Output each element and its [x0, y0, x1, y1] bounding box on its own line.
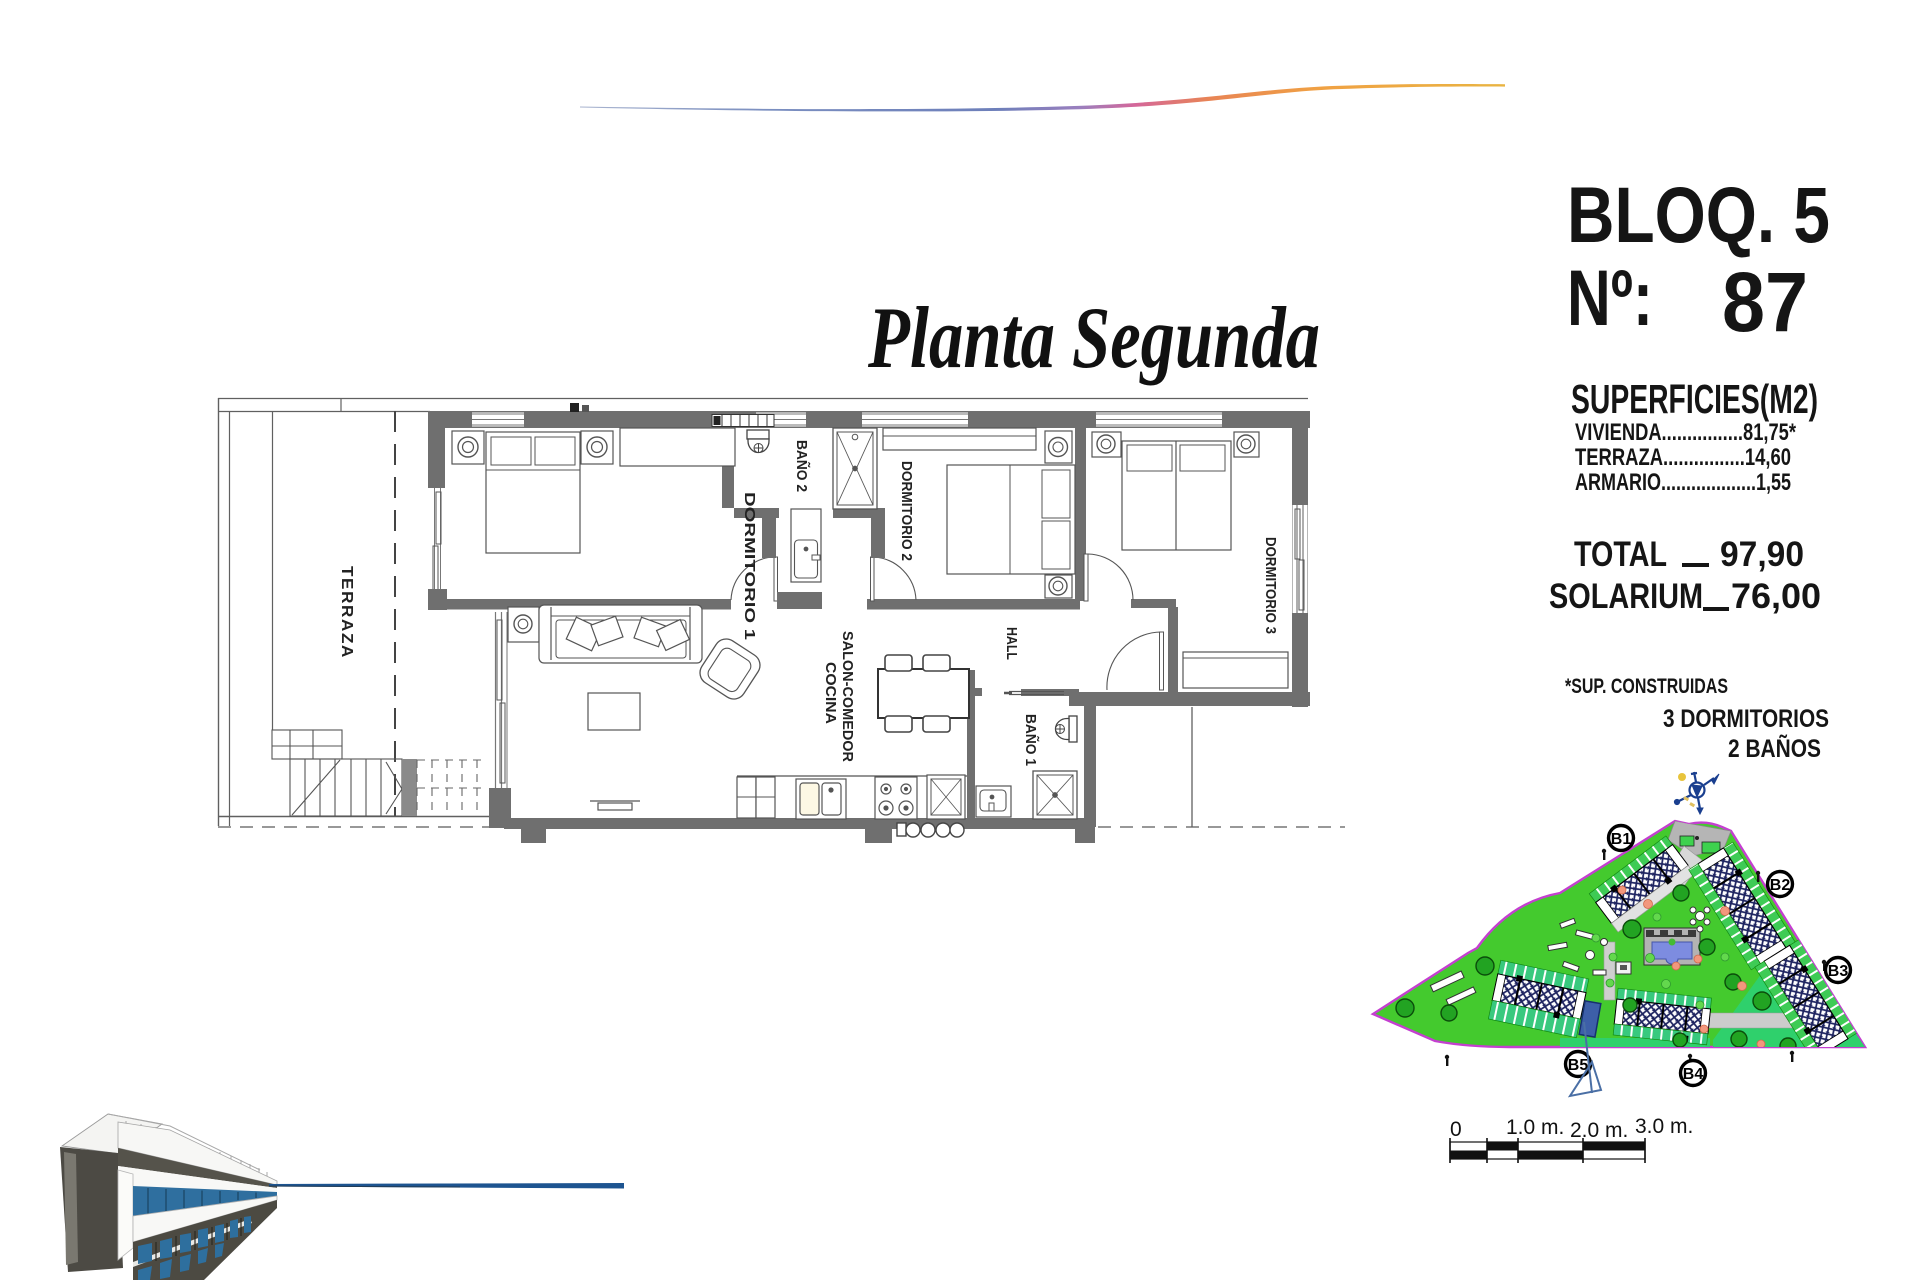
svg-text:DORMITORIO 1: DORMITORIO 1: [741, 492, 758, 640]
svg-text:VIVIENDA................81,75*: VIVIENDA................81,75*: [1575, 419, 1796, 446]
svg-text:2.0 m.: 2.0 m.: [1570, 1119, 1628, 1142]
svg-text:SUPERFICIES(M2): SUPERFICIES(M2): [1571, 376, 1818, 422]
svg-text:B2: B2: [1770, 877, 1791, 894]
svg-text:TERRAZA: TERRAZA: [338, 566, 355, 659]
svg-text:2 BAÑOS: 2 BAÑOS: [1728, 733, 1821, 763]
svg-text:B4: B4: [1683, 1066, 1704, 1083]
svg-text:*SUP. CONSTRUIDAS: *SUP. CONSTRUIDAS: [1565, 675, 1728, 698]
svg-text:3 DORMITORIOS: 3 DORMITORIOS: [1663, 705, 1829, 733]
svg-text:BLOQ. 5: BLOQ. 5: [1567, 170, 1830, 259]
svg-text:DORMITORIO 2: DORMITORIO 2: [898, 461, 914, 561]
svg-text:TERRAZA................14,60: TERRAZA................14,60: [1575, 444, 1791, 471]
svg-text:87: 87: [1722, 255, 1808, 349]
svg-text:SALON-COMEDOR: SALON-COMEDOR: [839, 631, 856, 762]
svg-text:ARMARIO...................1,55: ARMARIO...................1,55: [1575, 469, 1791, 496]
svg-text:Nº:: Nº:: [1567, 253, 1653, 342]
svg-text:SOLARIUM: SOLARIUM: [1549, 577, 1703, 616]
svg-text:COCINA: COCINA: [822, 662, 839, 724]
svg-text:BAÑO 1: BAÑO 1: [1022, 714, 1040, 766]
svg-text:97,90: 97,90: [1720, 535, 1804, 574]
svg-text:76,00: 76,00: [1731, 577, 1821, 616]
svg-text:HALL: HALL: [1003, 627, 1020, 660]
svg-text:Planta Segunda: Planta Segunda: [867, 290, 1320, 387]
svg-text:BAÑO 2: BAÑO 2: [793, 440, 811, 492]
svg-text:DORMITORIO 3: DORMITORIO 3: [1262, 537, 1278, 634]
svg-text:B3: B3: [1828, 963, 1849, 980]
svg-text:0: 0: [1450, 1118, 1462, 1141]
svg-text:3.0 m.: 3.0 m.: [1635, 1115, 1693, 1138]
svg-text:B1: B1: [1611, 831, 1632, 848]
svg-text:TOTAL: TOTAL: [1574, 535, 1667, 574]
svg-text:1.0 m.: 1.0 m.: [1506, 1116, 1564, 1139]
